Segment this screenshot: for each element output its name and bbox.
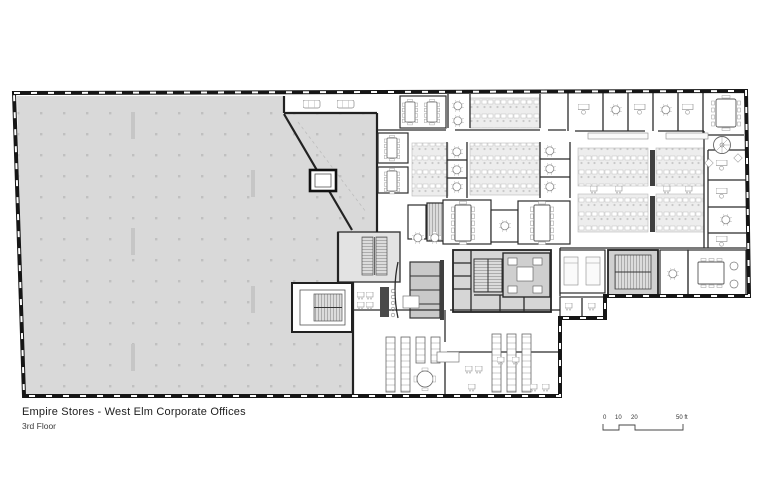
sheet: Empire Stores - West Elm Corporate Offic… <box>0 0 760 491</box>
conference-table <box>530 201 553 244</box>
scale-label-10: 10 <box>615 415 622 421</box>
servery-island <box>437 352 459 362</box>
private-offices-top <box>578 103 708 139</box>
scale-label-50ft: 50 ft <box>676 415 688 421</box>
locker-bank <box>395 260 444 320</box>
east-stair <box>608 250 658 296</box>
escalator <box>338 232 400 282</box>
warehouse-stair <box>292 283 352 332</box>
sofa <box>337 100 354 108</box>
communal-tables <box>386 334 531 392</box>
conference-table <box>451 201 474 244</box>
scale-bar: 0 10 20 50 ft <box>602 415 694 435</box>
wellness-rooms <box>560 250 605 293</box>
bar-counter <box>380 287 389 317</box>
spine-wall <box>650 196 655 232</box>
south-east-rooms <box>660 250 746 296</box>
boardroom-top-right <box>712 96 741 131</box>
drawing-title: Empire Stores - West Elm Corporate Offic… <box>22 406 246 418</box>
round-dining-table <box>414 368 436 391</box>
column-grid <box>17 96 377 395</box>
spine-wall <box>650 150 655 186</box>
office-wing <box>378 93 746 320</box>
entry-corridor <box>284 96 377 113</box>
warehouse-area <box>17 96 400 396</box>
drawing-subtitle: 3rd Floor <box>22 421 56 431</box>
sofa <box>303 100 320 108</box>
scale-label-0: 0 <box>603 415 606 421</box>
scale-bar-line <box>602 422 694 432</box>
freight-elevator <box>310 170 336 191</box>
scale-label-20: 20 <box>631 415 638 421</box>
building-core <box>453 250 551 312</box>
